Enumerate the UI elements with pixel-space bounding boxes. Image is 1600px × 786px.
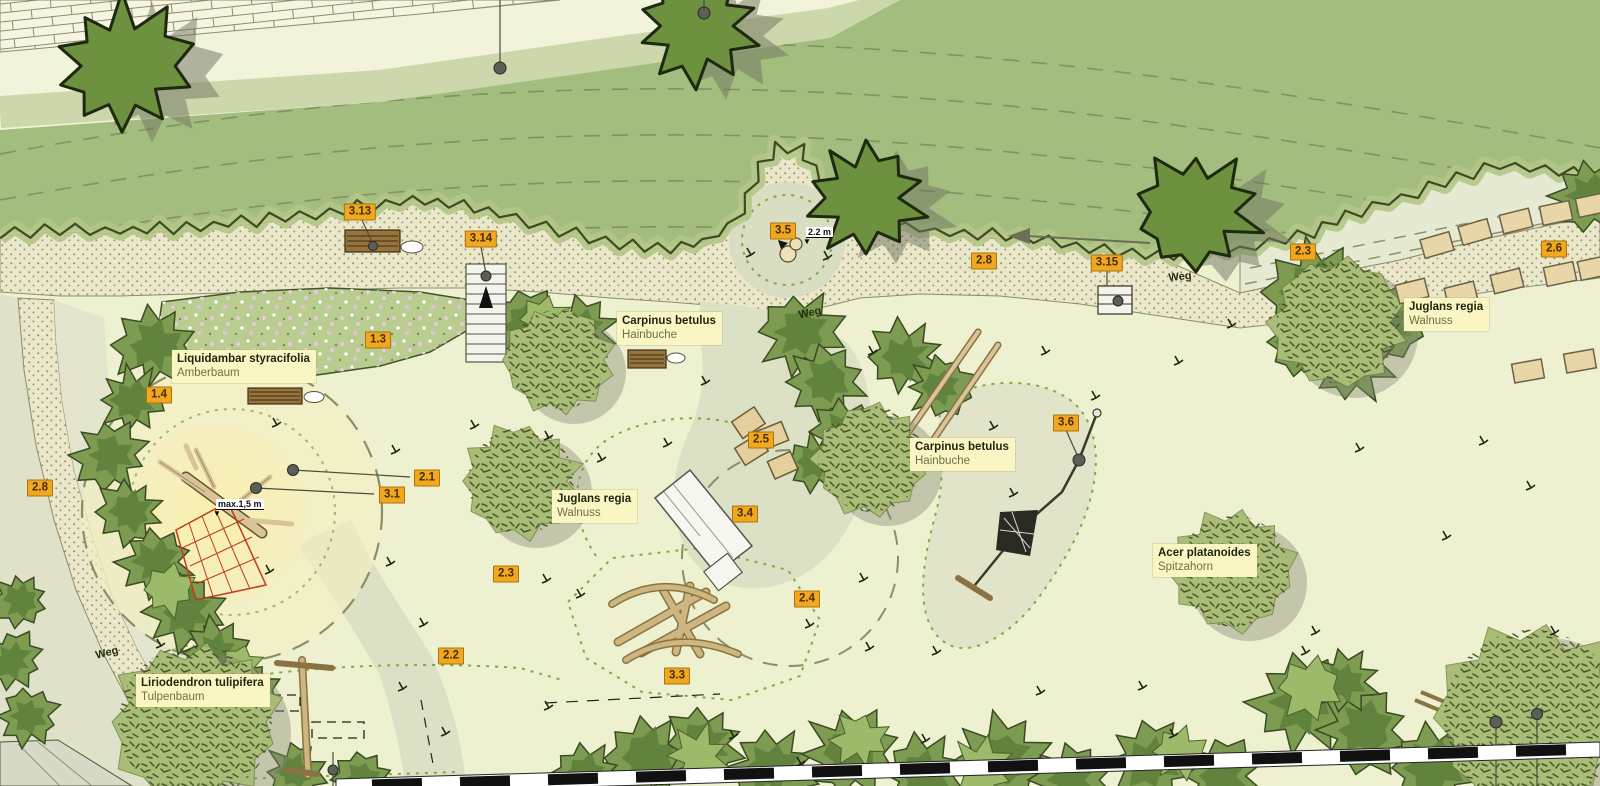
- boundary-segment: [1076, 757, 1126, 769]
- tree-canopy-hatch: [508, 310, 608, 410]
- stepping-stone: [1512, 359, 1545, 383]
- boundary-segment: [636, 770, 686, 782]
- landscape-plan: 3.133.141.31.42.83.52.83.152.32.62.13.12…: [0, 0, 1600, 786]
- boundary-segment: [1340, 749, 1390, 761]
- tree-canopy-hatch: [1177, 515, 1288, 626]
- litter-bin: [304, 392, 324, 403]
- boundary-segment: [812, 765, 862, 777]
- boundary-segment: [900, 762, 950, 774]
- litter-bin: [401, 241, 423, 253]
- tree-canopy-hatch: [468, 428, 574, 534]
- bench: [248, 388, 302, 404]
- boundary-segment: [1164, 755, 1214, 767]
- boundary-segment: [1516, 744, 1566, 756]
- site-plan-canvas: [0, 0, 1600, 786]
- tree-canopy-hatch: [1277, 261, 1400, 384]
- boundary-segment: [724, 768, 774, 780]
- boundary-segment: [988, 760, 1038, 772]
- stepping-stone: [1564, 349, 1597, 373]
- tree-canopy-hatch: [818, 406, 924, 512]
- litter-bin: [667, 353, 685, 363]
- bench: [628, 350, 666, 368]
- boundary-segment: [548, 773, 598, 785]
- boundary-segment: [1252, 752, 1302, 764]
- boundary-segment: [1428, 747, 1478, 759]
- boundary-segment: [460, 775, 510, 786]
